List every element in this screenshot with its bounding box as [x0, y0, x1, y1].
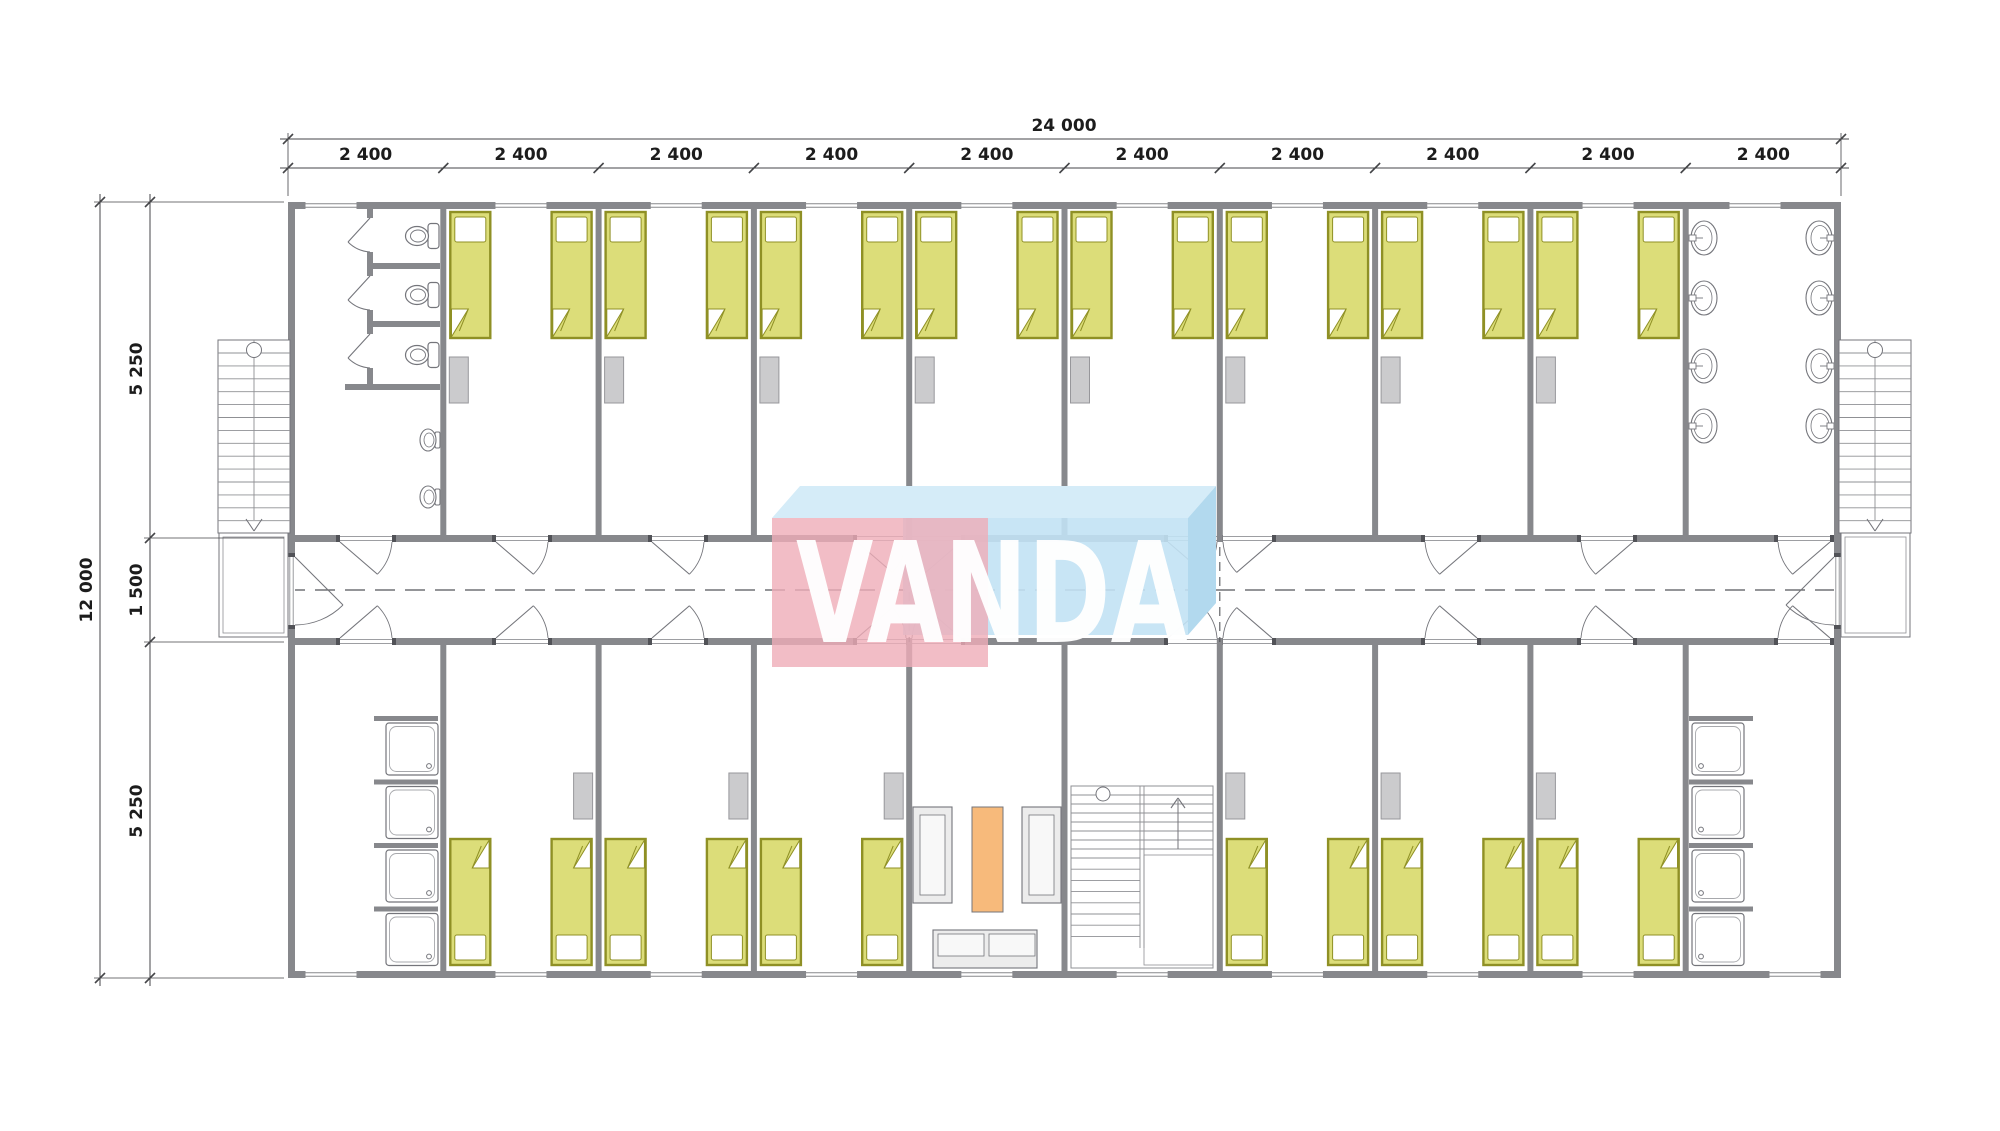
partition-stub — [751, 535, 757, 542]
corridor-wall — [1276, 535, 1421, 542]
shower-tray — [1692, 914, 1744, 966]
bed — [1173, 212, 1213, 338]
entry-landing — [1841, 533, 1910, 637]
door-leaf — [340, 542, 377, 574]
dimension-width-segment: 2 400 — [650, 145, 703, 165]
door-leaf — [1440, 542, 1477, 574]
bed-pillow — [1177, 217, 1208, 242]
shower-partition — [374, 716, 438, 721]
window — [495, 202, 547, 209]
door-jamb — [492, 535, 496, 542]
dimension-width-segment: 2 400 — [1737, 145, 1790, 165]
shower-partition — [374, 843, 438, 848]
shower-partition — [1689, 716, 1753, 721]
bed-pillow — [867, 935, 898, 960]
door-jamb — [392, 638, 396, 645]
bed — [707, 212, 747, 338]
shower-tray — [1692, 723, 1744, 775]
partition-wall — [440, 209, 446, 535]
bed-pillow — [610, 217, 641, 242]
shower-partition — [374, 780, 438, 785]
dimension-width-segment: 2 400 — [1271, 145, 1324, 165]
bed — [1639, 839, 1679, 965]
bed — [1382, 212, 1422, 338]
bed-pillow — [556, 217, 587, 242]
door-jamb — [548, 638, 552, 645]
shower-partition — [1689, 843, 1753, 848]
door-swing-arc — [377, 606, 392, 638]
partition-wall — [1683, 645, 1689, 971]
bed — [1227, 212, 1267, 338]
stall-door — [348, 334, 370, 358]
partition-stub — [1372, 535, 1378, 542]
lounge — [913, 807, 1061, 968]
door-leaf — [1793, 542, 1830, 574]
shower-tray — [1692, 787, 1744, 839]
door-leaf — [1237, 542, 1272, 572]
partition-wall — [596, 645, 602, 971]
dimension-width-segment: 2 400 — [494, 145, 547, 165]
shower-drain — [1699, 891, 1704, 896]
door-jamb — [1577, 638, 1581, 645]
shower-tray — [386, 850, 438, 902]
door-swing-arc — [1778, 606, 1793, 638]
partition-stub — [440, 638, 446, 645]
window — [1116, 971, 1168, 978]
bed — [450, 839, 490, 965]
door-swing-arc — [1223, 608, 1237, 638]
bed — [1537, 212, 1577, 338]
bed-pillow — [1231, 935, 1262, 960]
door-jamb — [704, 638, 708, 645]
door-jamb — [1421, 535, 1425, 542]
door-jamb — [548, 535, 552, 542]
bed-pillow — [1076, 217, 1107, 242]
stall-door — [348, 276, 370, 300]
bed — [606, 839, 646, 965]
window — [806, 202, 858, 209]
door-swing-arc — [1425, 542, 1440, 574]
door-jamb — [704, 535, 708, 542]
bed — [1537, 839, 1577, 965]
toilet-icon — [406, 224, 440, 249]
door-jamb — [648, 535, 652, 542]
partition-wall — [596, 209, 602, 535]
window — [305, 202, 357, 209]
entry-door-arc — [1786, 605, 1834, 625]
bed-pillow — [1387, 935, 1418, 960]
bed-pillow — [1488, 935, 1519, 960]
coffee-table — [972, 807, 1003, 912]
partition-stub — [1217, 535, 1223, 542]
door-leaf — [340, 606, 377, 638]
door-leaf — [496, 542, 533, 574]
stair-start-marker — [1868, 343, 1883, 358]
bed-pillow — [765, 217, 796, 242]
wardrobe — [729, 773, 748, 819]
stair-start-marker — [247, 343, 262, 358]
door-jamb — [336, 535, 340, 542]
bed-pillow — [711, 217, 742, 242]
corridor-wall — [1637, 638, 1774, 645]
bed-pillow — [1387, 217, 1418, 242]
bed-pillow — [1643, 217, 1674, 242]
bed — [552, 212, 592, 338]
bed — [450, 212, 490, 338]
door-swing-arc — [377, 542, 392, 574]
bed — [1072, 212, 1112, 338]
door-leaf — [652, 606, 689, 638]
partition-stub — [1683, 535, 1689, 542]
door-jamb — [392, 535, 396, 542]
floor-plan-canvas: VANDA 24 000 12 000 5 250 1 500 5 250 2 … — [0, 0, 2000, 1131]
wardrobe — [1226, 773, 1245, 819]
toilet-icon — [406, 283, 440, 308]
dimension-total-height: 12 000 — [77, 557, 97, 622]
wardrobe — [449, 357, 468, 403]
washbasin-icon — [1806, 281, 1834, 315]
shower-drain — [1699, 827, 1704, 832]
door-jamb — [1477, 535, 1481, 542]
staircase-external — [218, 340, 290, 533]
partition-stub — [1527, 535, 1533, 542]
corridor-wall — [295, 535, 336, 542]
partition-wall — [1062, 645, 1068, 971]
dimension-height-segment: 1 500 — [127, 563, 147, 616]
bed-pillow — [1488, 217, 1519, 242]
shower-drain — [427, 891, 432, 896]
partition-stub — [1683, 638, 1689, 645]
window — [1116, 202, 1168, 209]
wardrobe — [915, 357, 934, 403]
window — [961, 202, 1013, 209]
window — [1427, 971, 1479, 978]
watermark-text: VANDA — [796, 513, 1188, 676]
partition-stub — [751, 638, 757, 645]
entry-door-leaf — [295, 557, 343, 605]
door-jamb — [648, 638, 652, 645]
dimension-width-segment: 2 400 — [805, 145, 858, 165]
door-swing-arc — [1223, 542, 1237, 572]
dimension-height-segment: 5 250 — [127, 342, 147, 395]
shower-tray — [386, 914, 438, 966]
entry-door-arc — [295, 605, 343, 625]
dimension-height-segment: 5 250 — [127, 784, 147, 837]
wardrobe — [605, 357, 624, 403]
partition-wall — [440, 645, 446, 971]
shower-partition — [1689, 780, 1753, 785]
partition-stub — [1372, 638, 1378, 645]
wardrobe — [884, 773, 903, 819]
door-jamb — [1633, 638, 1637, 645]
bed — [1639, 212, 1679, 338]
shower-drain — [1699, 764, 1704, 769]
washbasin-icon — [1806, 221, 1834, 255]
toilet-icon — [406, 343, 440, 368]
bed-pillow — [1022, 217, 1053, 242]
door-swing-arc — [1581, 606, 1596, 638]
bed — [761, 212, 801, 338]
shower-drain — [427, 764, 432, 769]
shower-tray — [386, 787, 438, 839]
staircase-external — [1839, 340, 1911, 533]
bed — [761, 839, 801, 965]
bed-pillow — [765, 935, 796, 960]
bed — [707, 839, 747, 965]
door-swing-arc — [1581, 542, 1596, 574]
wardrobe — [760, 357, 779, 403]
corridor-wall — [295, 638, 336, 645]
shower-tray — [386, 723, 438, 775]
bed-pillow — [1333, 935, 1364, 960]
window — [1582, 202, 1634, 209]
bed — [1382, 839, 1422, 965]
partition-wall — [1372, 209, 1378, 535]
partition-wall — [1217, 209, 1223, 535]
bed — [916, 212, 956, 338]
entry-opening — [1834, 557, 1841, 625]
door-jamb — [1774, 638, 1778, 645]
bed-pillow — [556, 935, 587, 960]
urinal-icon — [420, 486, 440, 508]
entry-door-leaf — [1786, 557, 1834, 605]
dimension-total-width: 24 000 — [1031, 116, 1096, 136]
dimension-width-segment: 2 400 — [1581, 145, 1634, 165]
bed — [1328, 839, 1368, 965]
bed — [1483, 839, 1523, 965]
door-jamb — [1421, 638, 1425, 645]
window — [1271, 202, 1323, 209]
bed-pillow — [455, 935, 486, 960]
partition-wall — [1372, 645, 1378, 971]
bed-pillow — [867, 217, 898, 242]
dimension-width-segment: 2 400 — [1116, 145, 1169, 165]
partition-wall — [751, 209, 757, 535]
partition-wall — [1527, 209, 1533, 535]
wardrobe — [1536, 773, 1555, 819]
stair-start-marker — [1096, 787, 1110, 801]
shower-partition — [374, 907, 438, 912]
partition-wall — [751, 645, 757, 971]
door-jamb — [1577, 535, 1581, 542]
partition-wall — [1683, 209, 1689, 535]
door-jamb — [1633, 535, 1637, 542]
partition-stub — [440, 535, 446, 542]
door-jamb — [1774, 535, 1778, 542]
washbasin-icon — [1806, 349, 1834, 383]
shower-tray — [1692, 850, 1744, 902]
door-leaf — [1237, 608, 1272, 638]
corridor-wall — [1276, 638, 1421, 645]
bed-pillow — [455, 217, 486, 242]
entry-opening — [288, 557, 295, 625]
wardrobe — [1536, 357, 1555, 403]
door-swing-arc — [689, 606, 704, 638]
partition-stub — [596, 638, 602, 645]
window — [1427, 202, 1479, 209]
staircase-internal — [1071, 786, 1213, 968]
wardrobe — [574, 773, 593, 819]
shower-drain — [427, 827, 432, 832]
window — [650, 202, 702, 209]
shower-partition — [1689, 907, 1753, 912]
partition-stub — [1527, 638, 1533, 645]
bed — [606, 212, 646, 338]
window — [1729, 202, 1781, 209]
bed-pillow — [1231, 217, 1262, 242]
dimension-width-segment: 2 400 — [339, 145, 392, 165]
bed-pillow — [711, 935, 742, 960]
bed — [1018, 212, 1058, 338]
door-swing-arc — [533, 606, 548, 638]
bed-pillow — [1333, 217, 1364, 242]
door-jamb — [1477, 638, 1481, 645]
bed-pillow — [1542, 935, 1573, 960]
bed-pillow — [1643, 935, 1674, 960]
door-leaf — [1440, 606, 1477, 638]
door-swing-arc — [1778, 542, 1793, 574]
partition-wall — [906, 645, 912, 971]
door-jamb — [1272, 535, 1276, 542]
bed-pillow — [610, 935, 641, 960]
washbasin-icon — [1689, 281, 1717, 315]
door-swing-arc — [1425, 606, 1440, 638]
door-leaf — [652, 542, 689, 574]
window — [806, 971, 858, 978]
window — [961, 971, 1013, 978]
urinal-icon — [420, 429, 440, 451]
partition-wall — [1217, 645, 1223, 971]
washbasin-icon — [1689, 221, 1717, 255]
window — [495, 971, 547, 978]
partition-stub — [596, 535, 602, 542]
door-jamb — [336, 638, 340, 645]
window — [1271, 971, 1323, 978]
door-jamb — [1830, 638, 1834, 645]
entry-landing — [219, 533, 288, 637]
door-jamb — [1830, 535, 1834, 542]
door-swing-arc — [533, 542, 548, 574]
bed — [552, 839, 592, 965]
wardrobe — [1226, 357, 1245, 403]
wardrobe — [1381, 357, 1400, 403]
window — [650, 971, 702, 978]
washbasin-icon — [1689, 349, 1717, 383]
bed — [862, 839, 902, 965]
door-swing-arc — [689, 542, 704, 574]
wardrobe — [1381, 773, 1400, 819]
bed — [1483, 212, 1523, 338]
door-leaf — [1596, 542, 1633, 574]
shower-drain — [1699, 954, 1704, 959]
bed — [1227, 839, 1267, 965]
washbasin-icon — [1806, 409, 1834, 443]
bed-pillow — [921, 217, 952, 242]
dimension-width-segment: 2 400 — [960, 145, 1013, 165]
door-jamb — [1272, 638, 1276, 645]
stall-door — [348, 218, 370, 242]
partition-wall — [1527, 645, 1533, 971]
window — [1582, 971, 1634, 978]
window — [1769, 971, 1821, 978]
door-leaf — [1596, 606, 1633, 638]
washbasin-icon — [1689, 409, 1717, 443]
bed — [862, 212, 902, 338]
bed-pillow — [1542, 217, 1573, 242]
door-jamb — [492, 638, 496, 645]
door-leaf — [1793, 606, 1830, 638]
vanda-watermark: VANDA — [772, 486, 1216, 676]
dimension-width-segment: 2 400 — [1426, 145, 1479, 165]
corridor-wall — [1637, 535, 1774, 542]
wardrobe — [1071, 357, 1090, 403]
door-leaf — [496, 606, 533, 638]
shower-drain — [427, 954, 432, 959]
window — [305, 971, 357, 978]
bed — [1328, 212, 1368, 338]
